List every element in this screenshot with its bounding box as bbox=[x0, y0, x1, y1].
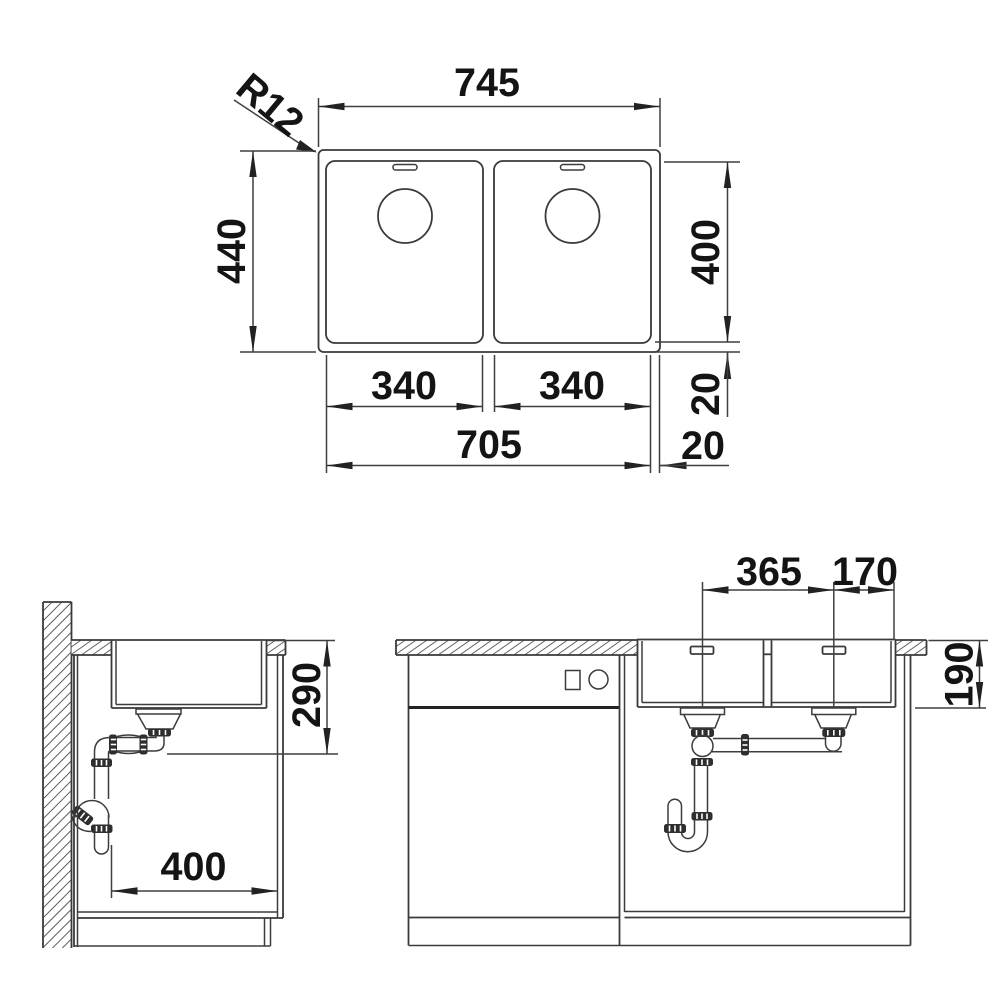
svg-text:745: 745 bbox=[454, 61, 520, 105]
svg-text:170: 170 bbox=[832, 550, 898, 594]
svg-text:190: 190 bbox=[938, 642, 982, 708]
svg-text:340: 340 bbox=[371, 364, 437, 408]
svg-text:290: 290 bbox=[285, 662, 329, 728]
svg-text:20: 20 bbox=[681, 424, 725, 468]
svg-text:440: 440 bbox=[210, 218, 254, 284]
svg-text:20: 20 bbox=[684, 372, 728, 416]
svg-text:400: 400 bbox=[684, 219, 728, 285]
svg-text:400: 400 bbox=[161, 845, 227, 889]
svg-text:365: 365 bbox=[736, 550, 802, 594]
svg-text:705: 705 bbox=[456, 423, 522, 467]
svg-text:340: 340 bbox=[539, 364, 605, 408]
